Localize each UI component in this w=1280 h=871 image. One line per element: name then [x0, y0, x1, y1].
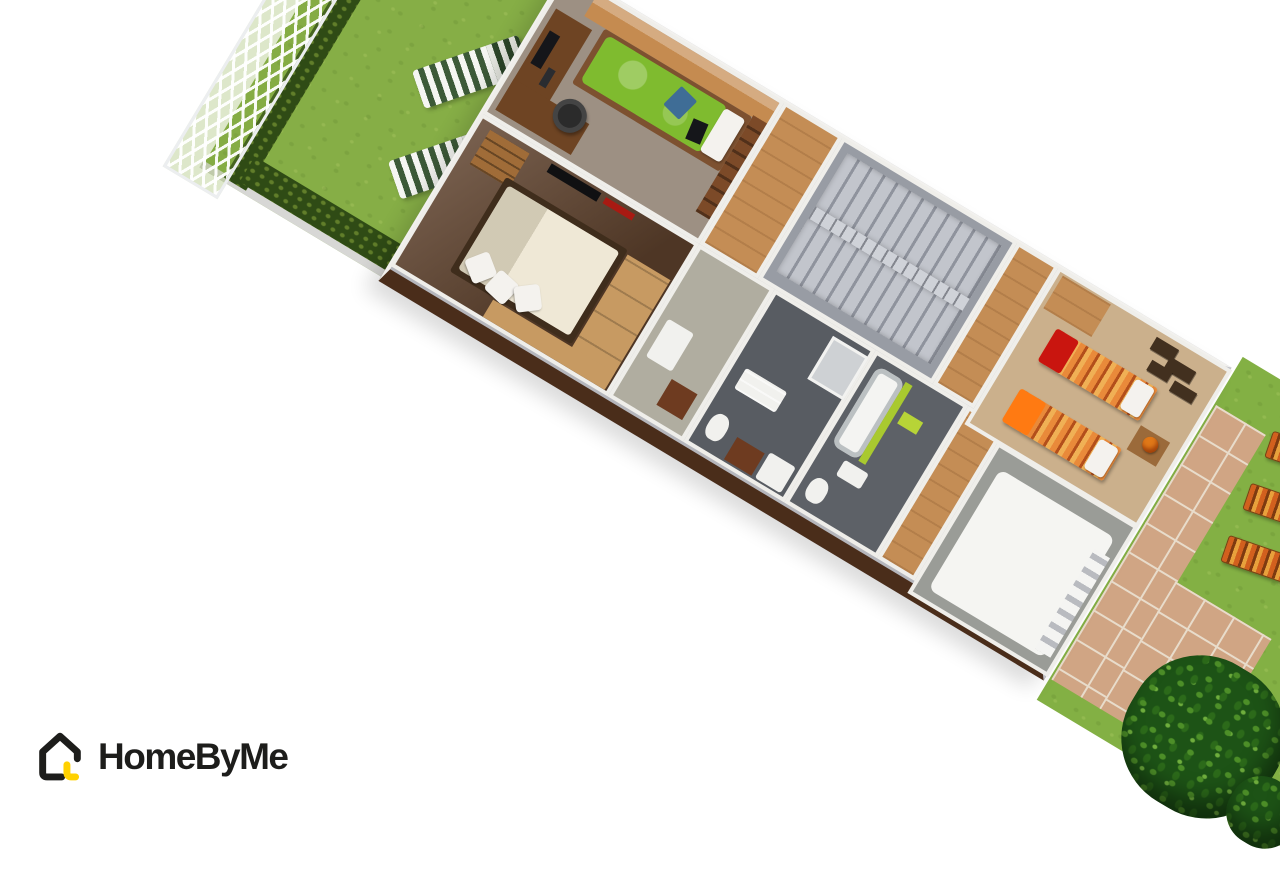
floorplan-rotated-group	[199, 0, 1280, 845]
homebyme-house-icon	[34, 729, 86, 785]
bed-pillow	[513, 284, 542, 313]
floorplan-3d-viewport[interactable]: HomeByMe	[0, 0, 1280, 800]
logo-wordmark: HomeByMe	[98, 736, 288, 778]
homebyme-logo: HomeByMe	[34, 729, 288, 785]
